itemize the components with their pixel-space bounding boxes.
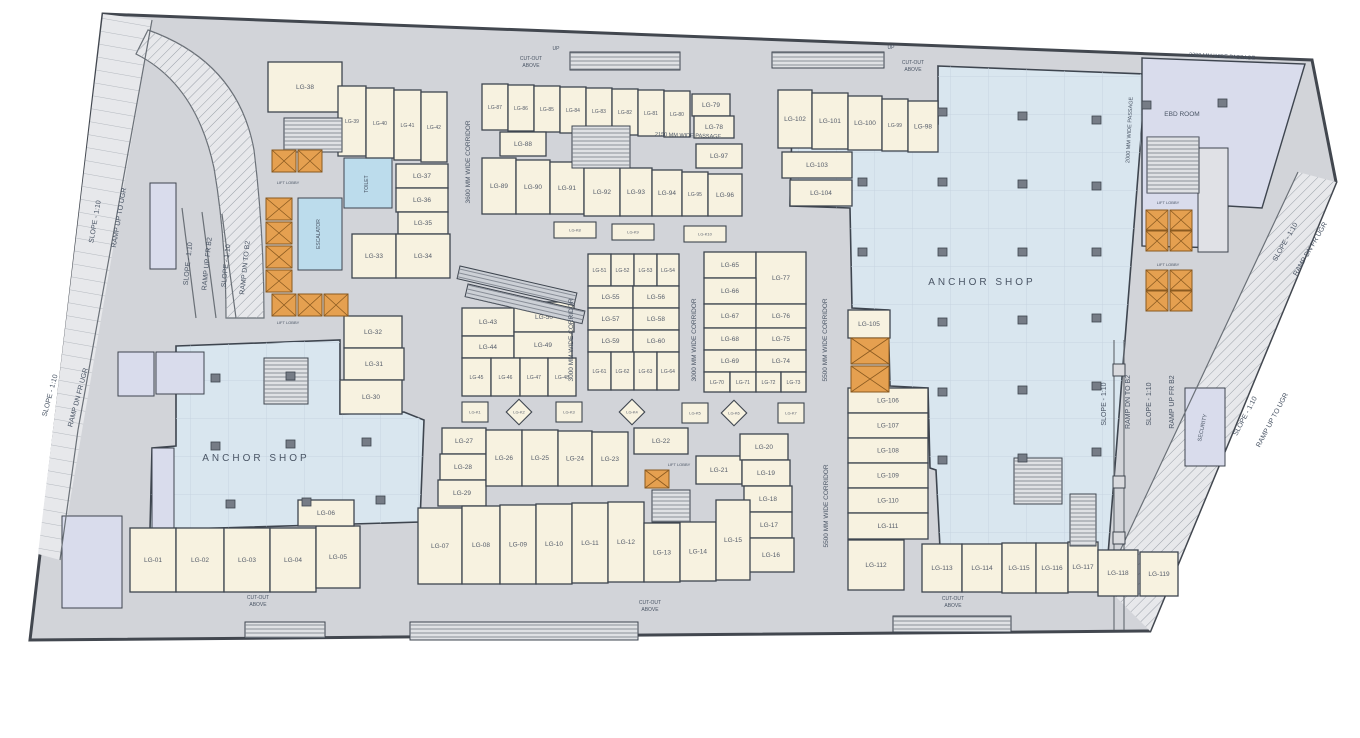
shop-label-LG-51: LG-51: [593, 268, 607, 274]
shop-label-LG-35: LG-35: [414, 220, 432, 227]
shop-label-LG-36: LG-36: [413, 197, 431, 204]
shop-label-LG-89: LG-89: [490, 183, 508, 190]
shop-label-LG-56: LG-56: [647, 294, 665, 301]
shop-label-LG-116: LG-116: [1041, 565, 1063, 572]
shop-label-LG-55: LG-55: [601, 294, 619, 301]
label-slope-1-10: SLOPE - 1:10: [1146, 382, 1153, 425]
shop-label-LG-28: LG-28: [454, 464, 472, 471]
label-ramp-up-to-ugr: RAMP UP TO UGR: [1255, 392, 1290, 449]
label-up: UP: [553, 46, 561, 52]
floor-plan-page: LG-38LG-39LG-40LG-41LG-42LG-37LG-36LG-35…: [0, 0, 1360, 738]
column-marker: [1018, 386, 1027, 394]
shop-label-LG-106: LG-106: [877, 398, 899, 405]
column-marker: [1142, 101, 1151, 109]
shop-label-LG-45: LG-45: [470, 375, 484, 381]
staircase-treads: [245, 622, 325, 638]
staircase-treads: [772, 52, 884, 68]
shop-label-LG-104: LG-104: [810, 190, 832, 197]
shop-label-LG-33: LG-33: [365, 253, 383, 260]
shop-label-LG-118: LG-118: [1107, 570, 1129, 577]
shop-label-LG-19: LG-19: [757, 470, 775, 477]
kiosk-label-LG-K10: LG-K10: [698, 232, 713, 237]
shop-label-LG-60: LG-60: [647, 338, 665, 345]
shop-label-LG-114: LG-114: [971, 565, 993, 572]
shop-label-LG-119: LG-119: [1148, 571, 1170, 578]
shop-label-LG-13: LG-13: [653, 550, 671, 557]
staircase-treads: [264, 358, 308, 404]
shop-label-LG-64: LG-64: [661, 369, 675, 375]
shop-label-LG-31: LG-31: [365, 361, 383, 368]
staircase-treads: [284, 118, 342, 152]
shop-label-LG-24: LG-24: [566, 456, 584, 463]
label-anchor-shop: ANCHOR SHOP: [202, 453, 309, 464]
column-marker: [226, 500, 235, 508]
label-3000-mm-wide-corridor: 3000 MM WIDE CORRIDOR: [691, 298, 698, 381]
label-escalator: ESCALATOR: [316, 219, 322, 249]
label-cut-out: CUT-OUT: [639, 600, 661, 606]
shop-label-LG-111: LG-111: [878, 523, 899, 530]
shop-label-LG-03: LG-03: [238, 557, 256, 564]
column-marker: [1092, 382, 1101, 390]
shop-label-LG-81: LG-81: [644, 111, 658, 117]
column-marker: [1092, 116, 1101, 124]
shop-label-LG-12: LG-12: [617, 539, 635, 546]
shop-label-LG-79: LG-79: [702, 102, 720, 109]
shop-label-LG-14: LG-14: [689, 549, 707, 556]
shop-label-LG-91: LG-91: [558, 185, 576, 192]
label-cut-out: CUT-OUT: [247, 595, 269, 601]
column-marker: [938, 178, 947, 186]
shop-label-LG-68: LG-68: [721, 336, 739, 343]
label-cut-out: CUT-OUT: [942, 596, 964, 602]
kiosk-label-LG-K8: LG-K8: [569, 228, 581, 233]
utility-room: [156, 352, 204, 394]
label-toilet: TOILET: [364, 175, 370, 192]
shop-label-LG-46: LG-46: [499, 375, 513, 381]
shop-label-LG-49: LG-49: [534, 342, 552, 349]
kiosk-label-LG-K9: LG-K9: [627, 230, 639, 235]
column-marker: [1018, 112, 1027, 120]
shop-label-LG-08: LG-08: [472, 542, 490, 549]
shop-label-LG-09: LG-09: [509, 542, 527, 549]
shop-label-LG-11: LG-11: [581, 540, 599, 547]
shop-label-LG-84: LG-84: [566, 108, 580, 114]
column-marker: [1092, 182, 1101, 190]
shop-label-LG-117: LG-117: [1072, 564, 1094, 571]
shop-label-LG-70: LG-70: [710, 380, 724, 386]
shop-label-LG-108: LG-108: [877, 448, 899, 455]
column-marker: [1092, 448, 1101, 456]
shop-label-LG-27: LG-27: [455, 438, 473, 445]
label-cut-out: CUT-OUT: [520, 56, 542, 62]
shop-label-LG-16: LG-16: [762, 552, 780, 559]
column-marker: [1018, 316, 1027, 324]
column-marker: [286, 440, 295, 448]
shop-label-LG-73: LG-73: [787, 380, 801, 386]
staircase-treads: [652, 490, 690, 522]
staircase-treads: [572, 126, 630, 168]
shop-label-LG-87: LG-87: [488, 105, 502, 111]
kiosk-label-LG-K4: LG-K4: [626, 410, 638, 415]
shop-label-LG-83: LG-83: [592, 109, 606, 115]
label-5500-mm-wide-corridor: 5500 MM WIDE CORRIDOR: [823, 464, 830, 547]
utility-room: [118, 352, 154, 396]
shop-label-LG-101: LG-101: [819, 118, 841, 125]
shop-label-LG-43: LG-43: [479, 319, 497, 326]
shop-label-LG-23: LG-23: [601, 456, 619, 463]
shop-label-LG-93: LG-93: [627, 189, 645, 196]
shop-label-LG-42: LG-42: [427, 125, 441, 131]
staircase-treads: [1147, 137, 1199, 193]
column-marker: [1018, 454, 1027, 462]
label-cut-out: CUT-OUT: [902, 60, 924, 66]
column-marker: [858, 248, 867, 256]
shop-label-LG-100: LG-100: [854, 120, 876, 127]
column-marker: [1218, 99, 1227, 107]
shop-label-LG-34: LG-34: [414, 253, 432, 260]
column-marker: [858, 178, 867, 186]
label-5500-mm-wide-corridor: 5500 MM WIDE CORRIDOR: [822, 298, 829, 381]
shop-label-LG-69: LG-69: [721, 358, 739, 365]
shop-label-LG-113: LG-113: [931, 565, 953, 572]
shop-label-LG-58: LG-58: [647, 316, 665, 323]
column-marker: [1018, 248, 1027, 256]
column-marker: [362, 438, 371, 446]
shop-label-LG-05: LG-05: [329, 554, 347, 561]
lane-marker: [1113, 532, 1125, 544]
kiosk-label-LG-K2: LG-K2: [513, 410, 525, 415]
column-marker: [938, 388, 947, 396]
shop-label-LG-99: LG-99: [888, 123, 902, 129]
column-marker: [938, 456, 947, 464]
shop-label-LG-107: LG-107: [877, 423, 899, 430]
shop-label-LG-85: LG-85: [540, 107, 554, 113]
column-marker: [211, 442, 220, 450]
shop-label-LG-96: LG-96: [716, 192, 734, 199]
shop-label-LG-30: LG-30: [362, 394, 380, 401]
shop-label-LG-112: LG-112: [865, 562, 887, 569]
shop-label-LG-95: LG-95: [688, 192, 702, 198]
shop-label-LG-109: LG-109: [877, 473, 899, 480]
kiosk-label-LG-K6: LG-K6: [728, 411, 740, 416]
staircase-treads: [410, 622, 638, 640]
shop-label-LG-71: LG-71: [736, 380, 750, 386]
shop-label-LG-39: LG-39: [345, 119, 359, 125]
shop-label-LG-29: LG-29: [453, 490, 471, 497]
shop-label-LG-01: LG-01: [144, 557, 162, 564]
shop-label-LG-47: LG-47: [527, 375, 541, 381]
shop-label-LG-18: LG-18: [759, 496, 777, 503]
kiosk-label-LG-K7: LG-K7: [785, 411, 797, 416]
label-lift-lobby: LIFT LOBBY: [1157, 262, 1180, 267]
shop-label-LG-67: LG-67: [721, 313, 739, 320]
shop-label-LG-53: LG-53: [639, 268, 653, 274]
label-above: ABOVE: [249, 602, 267, 608]
shop-label-LG-44: LG-44: [479, 344, 497, 351]
shop-label-LG-02: LG-02: [191, 557, 209, 564]
shop-label-LG-32: LG-32: [364, 329, 382, 336]
label-ramp-dn-to-b2: RAMP DN TO B2: [1125, 375, 1132, 429]
label-3000-mm-wide-corridor: 3000 MM WIDE CORRIDOR: [568, 298, 575, 381]
label-above: ABOVE: [522, 63, 540, 69]
label-ramp-up-fr-b2: RAMP UP FR B2: [1169, 375, 1176, 429]
shop-label-LG-41: LG-41: [401, 123, 415, 129]
shop-label-LG-66: LG-66: [721, 288, 739, 295]
kiosk-label-LG-K5: LG-K5: [689, 411, 701, 416]
shop-label-LG-90: LG-90: [524, 184, 542, 191]
shop-label-LG-102: LG-102: [784, 116, 806, 123]
label-lift-lobby: LIFT LOBBY: [277, 320, 300, 325]
shop-label-LG-105: LG-105: [858, 321, 880, 328]
shop-label-LG-22: LG-22: [652, 438, 670, 445]
lane-marker: [1113, 364, 1125, 376]
shop-label-LG-15: LG-15: [724, 537, 742, 544]
shop-label-LG-59: LG-59: [601, 338, 619, 345]
label-lift-lobby: LIFT LOBBY: [277, 180, 300, 185]
shop-label-LG-97: LG-97: [710, 153, 728, 160]
service-room: [1198, 148, 1228, 252]
plan-root: LG-38LG-39LG-40LG-41LG-42LG-37LG-36LG-35…: [30, 14, 1336, 640]
column-marker: [286, 372, 295, 380]
shop-label-LG-04: LG-04: [284, 557, 302, 564]
label-slope-1-10: SLOPE - 1:10: [1101, 382, 1108, 425]
shop-label-LG-25: LG-25: [531, 455, 549, 462]
shop-label-LG-37: LG-37: [413, 173, 431, 180]
utility-room: [62, 516, 122, 608]
label-above: ABOVE: [944, 603, 962, 609]
shop-label-LG-21: LG-21: [710, 467, 728, 474]
staircase-treads: [1014, 458, 1062, 504]
shop-label-LG-40: LG-40: [373, 121, 387, 127]
lane-marker: [1113, 476, 1125, 488]
staircase-treads: [1070, 494, 1096, 546]
shop-label-LG-110: LG-110: [877, 498, 899, 505]
shop-label-LG-17: LG-17: [760, 522, 778, 529]
staircase-treads: [570, 52, 680, 70]
shop-label-LG-98: LG-98: [914, 124, 932, 131]
shop-label-LG-52: LG-52: [616, 268, 630, 274]
shop-label-LG-57: LG-57: [601, 316, 619, 323]
floor-plan-svg: LG-38LG-39LG-40LG-41LG-42LG-37LG-36LG-35…: [0, 0, 1360, 738]
label-3600-mm-wide-corridor: 3600 MM WIDE CORRIDOR: [465, 120, 472, 203]
column-marker: [938, 318, 947, 326]
staircase-treads: [893, 616, 1011, 632]
shop-label-LG-63: LG-63: [639, 369, 653, 375]
column-marker: [938, 248, 947, 256]
column-marker: [376, 496, 385, 504]
kiosk-label-LG-K1: LG-K1: [469, 410, 481, 415]
shop-label-LG-72: LG-72: [762, 380, 776, 386]
kiosk-label-LG-K3: LG-K3: [563, 410, 575, 415]
shop-label-LG-07: LG-07: [431, 543, 449, 550]
shop-label-LG-78: LG-78: [705, 124, 723, 131]
shop-label-LG-76: LG-76: [772, 313, 790, 320]
column-marker: [938, 108, 947, 116]
label-lift-lobby: LIFT LOBBY: [668, 462, 691, 467]
label-lift-lobby: LIFT LOBBY: [1157, 200, 1180, 205]
shop-label-LG-20: LG-20: [755, 444, 773, 451]
shop-label-LG-75: LG-75: [772, 336, 790, 343]
shop-label-LG-54: LG-54: [661, 268, 675, 274]
shop-label-LG-61: LG-61: [593, 369, 607, 375]
column-marker: [211, 374, 220, 382]
shop-label-LG-94: LG-94: [658, 190, 676, 197]
shop-label-LG-26: LG-26: [495, 455, 513, 462]
shop-label-LG-74: LG-74: [772, 358, 790, 365]
shop-label-LG-62: LG-62: [616, 369, 630, 375]
shop-label-LG-38: LG-38: [296, 84, 314, 91]
shop-label-LG-06: LG-06: [317, 510, 335, 517]
shop-label-LG-82: LG-82: [618, 110, 632, 116]
column-marker: [1092, 248, 1101, 256]
label-ebd-room: EBD ROOM: [1164, 111, 1199, 118]
shop-label-LG-86: LG-86: [514, 106, 528, 112]
label-up: UP: [888, 45, 896, 51]
shop-label-LG-115: LG-115: [1008, 565, 1030, 572]
shop-label-LG-77: LG-77: [772, 275, 790, 282]
column-marker: [1018, 180, 1027, 188]
column-marker: [1092, 314, 1101, 322]
shop-label-LG-80: LG-80: [670, 112, 684, 118]
utility-room: [150, 183, 176, 269]
shop-label-LG-103: LG-103: [806, 162, 828, 169]
shop-label-LG-10: LG-10: [545, 541, 563, 548]
shop-label-LG-92: LG-92: [593, 189, 611, 196]
column-marker: [302, 498, 311, 506]
shop-label-LG-65: LG-65: [721, 262, 739, 269]
label-above: ABOVE: [904, 67, 922, 73]
label-above: ABOVE: [641, 607, 659, 613]
shop-label-LG-88: LG-88: [514, 141, 532, 148]
label-anchor-shop: ANCHOR SHOP: [928, 277, 1035, 288]
